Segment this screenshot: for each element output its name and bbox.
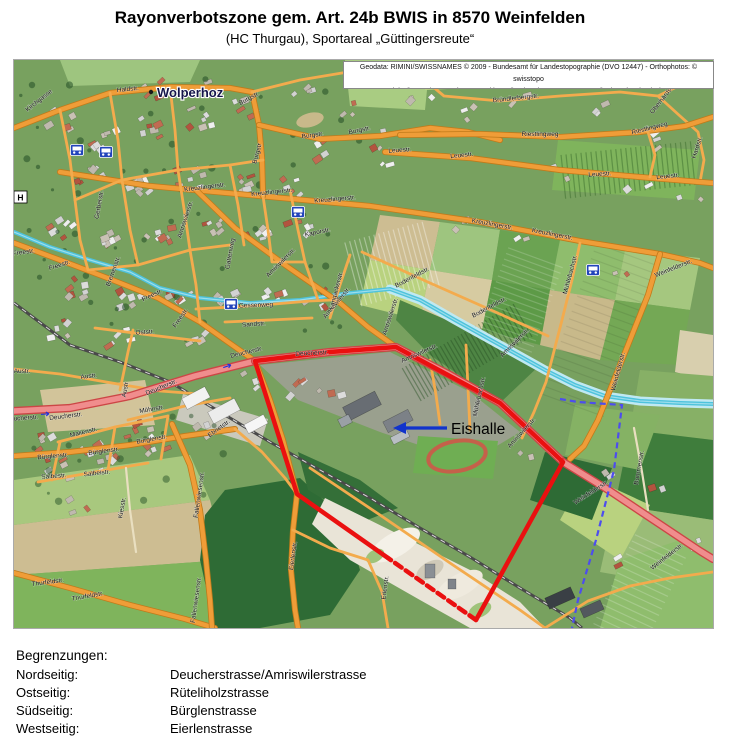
- copyright-line-2: Copyright © 1999/2009 Twix AG - MultiNet…: [344, 86, 713, 89]
- tree: [322, 88, 328, 94]
- legend-label: Nordseitig:: [16, 666, 170, 684]
- place-label: Wolperhoz: [157, 85, 224, 100]
- house: [528, 454, 535, 461]
- tree: [19, 94, 22, 97]
- tree: [322, 263, 329, 270]
- tree: [43, 258, 46, 261]
- street-label: Austr.: [14, 368, 30, 375]
- tree: [303, 328, 307, 332]
- eishalle-label: Eishalle: [451, 421, 505, 438]
- tree: [309, 264, 313, 268]
- tree: [51, 188, 54, 191]
- legend-row-east: Ostseitig:Rüteliholzstrasse: [16, 684, 367, 702]
- house: [140, 130, 147, 137]
- tree: [117, 455, 124, 462]
- tree: [202, 76, 208, 82]
- tree: [55, 498, 62, 505]
- legend-value: Eierlenstrasse: [170, 721, 252, 736]
- tree: [87, 148, 91, 152]
- map-copyright: Geodata: RIMINI/SWISSNAMES © 2009 - Bund…: [343, 61, 714, 89]
- legend-value: Bürglenstrasse: [170, 703, 257, 718]
- tree: [114, 246, 117, 249]
- bus-stop-icon: [225, 299, 238, 310]
- house: [81, 281, 89, 289]
- tree: [337, 324, 342, 329]
- tree: [291, 162, 296, 167]
- tree: [72, 231, 79, 238]
- tree: [196, 212, 200, 216]
- legend-value: Deucherstrasse/Amriswilerstrasse: [170, 667, 367, 682]
- tree: [189, 414, 194, 419]
- place-dot: [149, 90, 153, 94]
- street-label: Riestlingweg: [522, 131, 559, 138]
- bus-stop-icon: [587, 265, 600, 276]
- tree: [338, 117, 344, 123]
- legend-label: Westseitig:: [16, 720, 170, 738]
- bus-stop-icon: [71, 145, 84, 156]
- legend-row-west: Westseitig:Eierlenstrasse: [16, 720, 367, 738]
- tree: [169, 414, 175, 420]
- bus-stop-icon: [292, 207, 305, 218]
- tree: [77, 459, 81, 463]
- h-marker-label: H: [17, 193, 23, 203]
- tree: [37, 275, 42, 280]
- tree: [110, 322, 114, 326]
- legend-heading: Begrenzungen:: [16, 648, 367, 663]
- page-subtitle: (HC Thurgau), Sportareal „Güttingersreut…: [0, 31, 700, 46]
- tree: [220, 450, 227, 457]
- page: Rayonverbotszone gem. Art. 24b BWIS in 8…: [0, 0, 744, 742]
- tree: [148, 111, 154, 117]
- field: [430, 222, 500, 280]
- h-marker: H: [14, 191, 27, 203]
- page-title: Rayonverbotszone gem. Art. 24b BWIS in 8…: [0, 8, 700, 28]
- legend-row-south: Südseitig:Bürglenstrasse: [16, 702, 367, 720]
- house: [146, 124, 152, 129]
- tree: [29, 82, 35, 88]
- copyright-line-1: Geodata: RIMINI/SWISSNAMES © 2009 - Bund…: [344, 62, 713, 86]
- tree: [199, 105, 205, 111]
- place-label-group: Wolperhoz: [149, 85, 224, 100]
- tree: [88, 300, 93, 305]
- tree: [77, 137, 84, 144]
- bus-stop-icon: [100, 147, 113, 158]
- tree: [66, 442, 72, 448]
- boundaries-legend: Begrenzungen: Nordseitig:Deucherstrasse/…: [16, 648, 367, 738]
- legend-label: Südseitig:: [16, 702, 170, 720]
- tree: [330, 320, 334, 324]
- building: [425, 564, 435, 578]
- tree: [23, 155, 30, 162]
- tree: [143, 168, 148, 173]
- tree: [140, 497, 147, 504]
- street-label: Oststr.: [135, 328, 154, 336]
- tree: [141, 237, 146, 242]
- tree: [55, 230, 59, 234]
- tree: [36, 126, 39, 129]
- tree: [253, 226, 259, 232]
- house: [351, 100, 356, 106]
- legend-row-north: Nordseitig:Deucherstrasse/Amriswilerstra…: [16, 666, 367, 684]
- map: KirchgasseHaldstr.Burgstr.Burgstr.Burgst…: [14, 60, 713, 628]
- field: [60, 60, 200, 86]
- legend-value: Rüteliholzstrasse: [170, 685, 269, 700]
- street-label: Gessenweg: [239, 301, 274, 309]
- legend-label: Ostseitig:: [16, 684, 170, 702]
- building: [448, 579, 456, 589]
- tree: [47, 492, 50, 495]
- tree: [163, 475, 170, 482]
- tree: [122, 303, 129, 310]
- tree: [168, 219, 174, 225]
- house: [54, 325, 60, 332]
- house: [187, 177, 193, 182]
- house: [327, 389, 335, 397]
- tree: [66, 81, 73, 88]
- tree: [36, 165, 40, 169]
- tree: [115, 307, 119, 311]
- tree: [31, 446, 36, 451]
- tree: [27, 228, 32, 233]
